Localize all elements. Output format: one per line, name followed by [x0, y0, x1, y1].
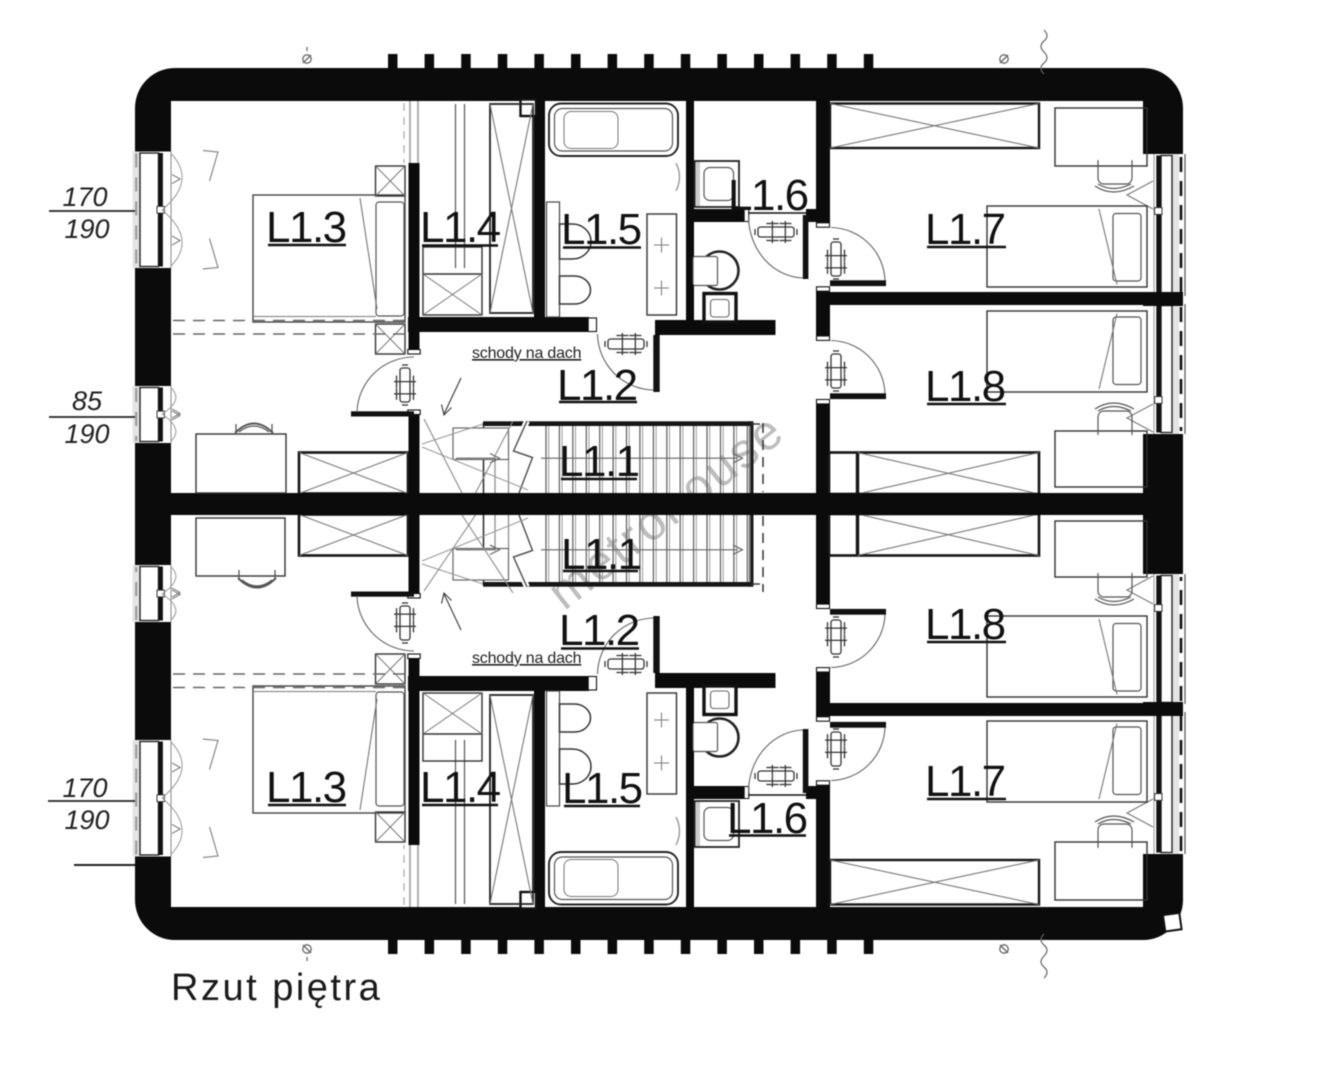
- svg-text:85: 85: [72, 386, 103, 416]
- svg-text:L1.6: L1.6: [728, 171, 808, 220]
- svg-text:190: 190: [64, 419, 109, 449]
- svg-text:190: 190: [64, 214, 109, 244]
- svg-text:Rzut piętra: Rzut piętra: [171, 967, 382, 1009]
- svg-text:schody na dach: schody na dach: [472, 650, 581, 667]
- svg-text:170: 170: [62, 773, 107, 803]
- svg-text:170: 170: [62, 182, 107, 212]
- svg-text:190: 190: [64, 805, 109, 835]
- svg-text:schody na dach: schody na dach: [472, 345, 581, 362]
